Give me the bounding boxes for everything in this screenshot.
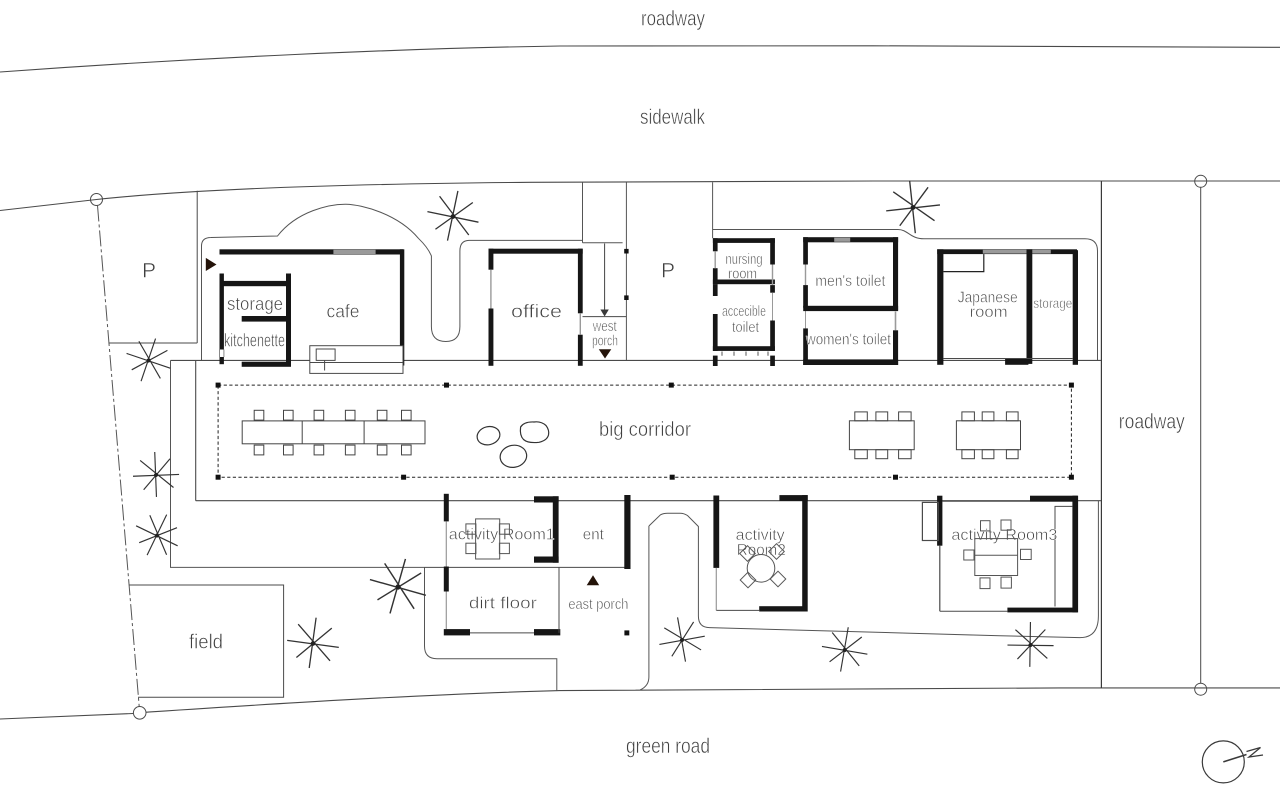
svg-text:east porch: east porch	[568, 596, 628, 613]
svg-text:roadway: roadway	[1119, 411, 1185, 434]
svg-text:activity Room1: activity Room1	[449, 527, 555, 544]
svg-text:women's toilet: women's toilet	[805, 332, 891, 349]
svg-text:accecible: accecible	[722, 303, 766, 320]
svg-text:Room2: Room2	[737, 542, 786, 559]
svg-text:porch: porch	[592, 333, 618, 350]
svg-text:storage: storage	[227, 294, 283, 314]
svg-text:sidewalk: sidewalk	[640, 106, 705, 129]
svg-text:field: field	[189, 632, 223, 654]
svg-text:activity Room3: activity Room3	[951, 527, 1057, 544]
svg-text:room: room	[970, 304, 1008, 321]
svg-text:toilet: toilet	[732, 319, 760, 336]
svg-text:kitchenette: kitchenette	[224, 331, 285, 351]
svg-text:room: room	[728, 266, 757, 283]
svg-text:ent: ent	[583, 527, 605, 544]
svg-text:men's toilet: men's toilet	[815, 273, 886, 290]
svg-text:green road: green road	[626, 735, 710, 758]
svg-text:storage: storage	[1033, 295, 1072, 311]
svg-text:P: P	[142, 260, 156, 283]
svg-text:office: office	[511, 302, 562, 322]
svg-text:dirt floor: dirt floor	[469, 594, 537, 613]
svg-text:big corridor: big corridor	[599, 419, 691, 441]
svg-text:P: P	[661, 260, 675, 283]
svg-text:roadway: roadway	[641, 8, 705, 31]
svg-text:cafe: cafe	[327, 302, 360, 322]
